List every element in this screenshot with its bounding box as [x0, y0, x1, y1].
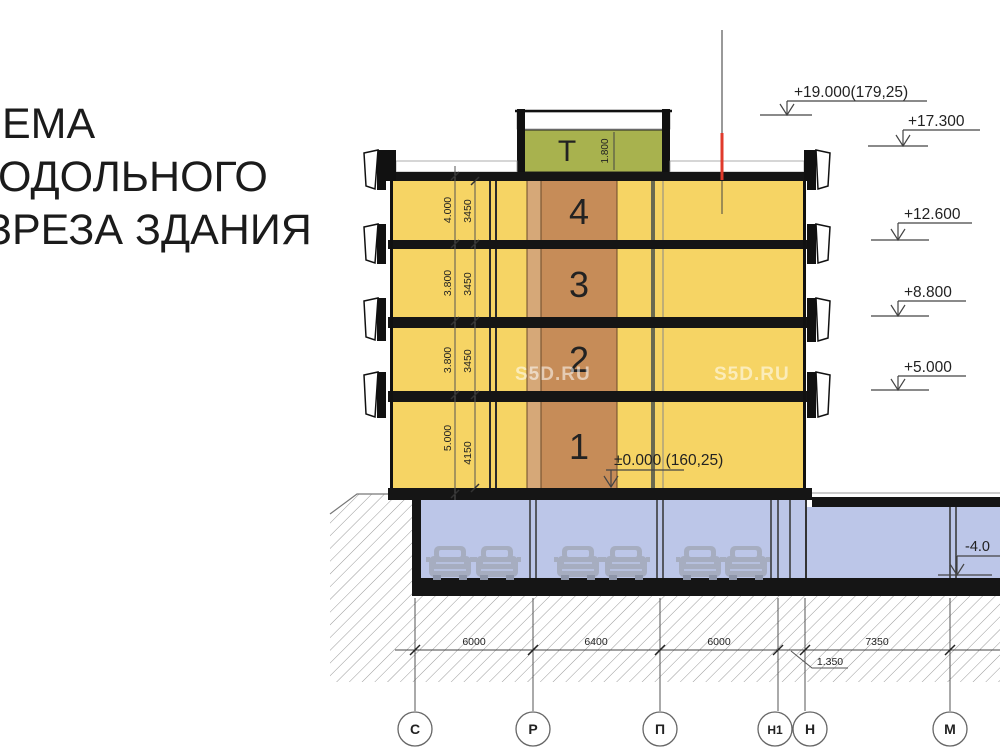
- floor-height-dim: 3.800: [442, 270, 454, 296]
- elevation-mark: +12.600: [871, 206, 972, 240]
- axis-label: Н: [805, 721, 815, 737]
- section-drawing: ЕМА ОДОЛЬНОГО ЗРЕЗА ЗДАНИЯ: [0, 0, 1000, 750]
- parking-floor-slab: [412, 578, 1000, 596]
- offset-dimension: 1.350: [817, 656, 843, 668]
- watermark: S5D.RU: [515, 364, 591, 386]
- floor-number: 3: [569, 264, 589, 305]
- floor-number: 1: [569, 426, 589, 467]
- span-dimension: 6400: [584, 636, 608, 648]
- elevation-mark: +19.000(179,25): [760, 84, 927, 115]
- floor-height-dim: 5.000: [442, 425, 454, 451]
- axis-label: Р: [528, 721, 537, 737]
- title-line-1: ЕМА: [2, 98, 312, 151]
- floor-clear-dim: 3450: [462, 199, 474, 223]
- elevation-label: +17.300: [908, 113, 965, 130]
- elevation-label: -4.0: [965, 539, 990, 555]
- drawing-title: ЕМА ОДОЛЬНОГО ЗРЕЗА ЗДАНИЯ: [0, 98, 312, 257]
- axis-label: П: [655, 721, 665, 737]
- floor-height-dim: 3.800: [442, 347, 454, 373]
- tech-floor: 1.800 Т: [515, 109, 672, 172]
- watermark: S5D.RU: [714, 364, 790, 386]
- axis-label: С: [410, 721, 420, 737]
- span-dimension: 6000: [462, 636, 486, 648]
- axis-label: М: [944, 721, 956, 737]
- floor-clear-dim: 3450: [462, 349, 474, 373]
- axis-bubbles: С Р П Н1 Н М: [398, 712, 967, 746]
- floor-number: 4: [569, 191, 589, 232]
- floor-clear-dim: 3450: [462, 272, 474, 296]
- elevation-label: +19.000(179,25): [794, 84, 908, 101]
- balconies-left: [364, 150, 386, 418]
- tech-floor-label: Т: [558, 135, 576, 168]
- axis-label: Н1: [767, 723, 783, 737]
- elevation-mark: +17.300: [868, 113, 980, 146]
- ground-slab-right: [812, 497, 1000, 507]
- building-section: 1.800 Т: [364, 30, 830, 500]
- balconies-right: [807, 150, 830, 418]
- span-dimension: 7350: [865, 636, 889, 648]
- floor-clear-dim: 4150: [462, 441, 474, 465]
- elevation-label: +5.000: [904, 359, 952, 376]
- elevation-mark: +5.000: [871, 359, 966, 390]
- floor-height-dim: 4.000: [442, 197, 454, 223]
- elevation-mark: +8.800: [871, 284, 966, 316]
- elevation-label: ±0.000 (160,25): [614, 452, 723, 469]
- title-line-3: ЗРЕЗА ЗДАНИЯ: [0, 204, 312, 257]
- span-dimension: 6000: [707, 636, 731, 648]
- parking-level: [412, 493, 1000, 596]
- elevation-label: +8.800: [904, 284, 952, 301]
- elevation-label: +12.600: [904, 206, 961, 223]
- title-line-2: ОДОЛЬНОГО: [0, 151, 312, 204]
- tech-floor-height-dim: 1.800: [600, 138, 611, 163]
